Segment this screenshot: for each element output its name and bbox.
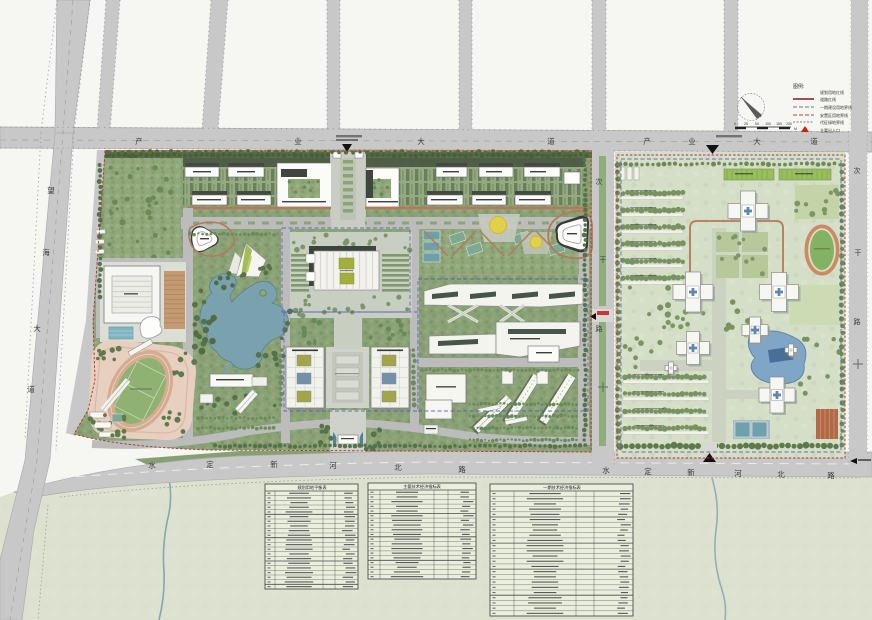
svg-text:河: 河 bbox=[734, 469, 742, 478]
svg-text:道: 道 bbox=[547, 136, 555, 146]
svg-text:业: 业 bbox=[688, 136, 696, 146]
svg-text:水: 水 bbox=[602, 465, 610, 475]
svg-text:100: 100 bbox=[765, 122, 771, 126]
svg-text:河: 河 bbox=[329, 461, 337, 470]
svg-text:海: 海 bbox=[42, 247, 50, 257]
svg-text:代征绿地界线: 代征绿地界线 bbox=[820, 119, 844, 125]
svg-text:定: 定 bbox=[644, 466, 652, 476]
svg-text:150: 150 bbox=[776, 122, 782, 126]
svg-text:新: 新 bbox=[270, 459, 278, 469]
svg-text:路: 路 bbox=[596, 324, 603, 333]
svg-text:次: 次 bbox=[854, 166, 861, 175]
svg-text:道路红线: 道路红线 bbox=[820, 96, 836, 102]
svg-text:定: 定 bbox=[206, 459, 214, 469]
svg-text:次: 次 bbox=[596, 177, 603, 186]
svg-text:大: 大 bbox=[33, 323, 41, 333]
svg-text:路: 路 bbox=[458, 464, 466, 474]
svg-text:规划用地红线: 规划用地红线 bbox=[820, 89, 844, 95]
svg-text:25: 25 bbox=[744, 122, 748, 126]
svg-text:望: 望 bbox=[47, 185, 55, 195]
svg-text:大: 大 bbox=[753, 136, 761, 146]
svg-text:规划用地平衡表: 规划用地平衡表 bbox=[297, 484, 327, 491]
svg-text:业: 业 bbox=[294, 136, 302, 146]
svg-text:北: 北 bbox=[777, 470, 785, 479]
svg-text:北: 北 bbox=[394, 463, 402, 472]
svg-text:路: 路 bbox=[854, 317, 861, 326]
svg-text:道: 道 bbox=[810, 136, 818, 146]
svg-text:新: 新 bbox=[687, 467, 695, 477]
svg-text:200: 200 bbox=[786, 122, 792, 126]
svg-text:主要出入口: 主要出入口 bbox=[820, 127, 840, 133]
svg-text:M: M bbox=[794, 127, 797, 131]
svg-text:主要技术经济指标表: 主要技术经济指标表 bbox=[403, 483, 442, 490]
svg-text:产: 产 bbox=[643, 136, 651, 146]
svg-text:一期建设用地界线: 一期建设用地界线 bbox=[820, 104, 852, 110]
svg-text:一期技术经济指标表: 一期技术经济指标表 bbox=[543, 484, 582, 491]
svg-text:道: 道 bbox=[27, 384, 35, 394]
svg-text:50: 50 bbox=[755, 122, 759, 126]
svg-text:大: 大 bbox=[417, 136, 425, 146]
svg-text:产: 产 bbox=[135, 136, 143, 146]
svg-text:路: 路 bbox=[827, 470, 835, 480]
svg-text:干: 干 bbox=[600, 256, 607, 264]
svg-text:水: 水 bbox=[148, 460, 156, 470]
svg-text:0: 0 bbox=[734, 122, 736, 126]
svg-text:安置区用地界线: 安置区用地界线 bbox=[820, 112, 848, 118]
svg-text:干: 干 bbox=[855, 249, 862, 257]
svg-text:图例:: 图例: bbox=[793, 83, 804, 90]
